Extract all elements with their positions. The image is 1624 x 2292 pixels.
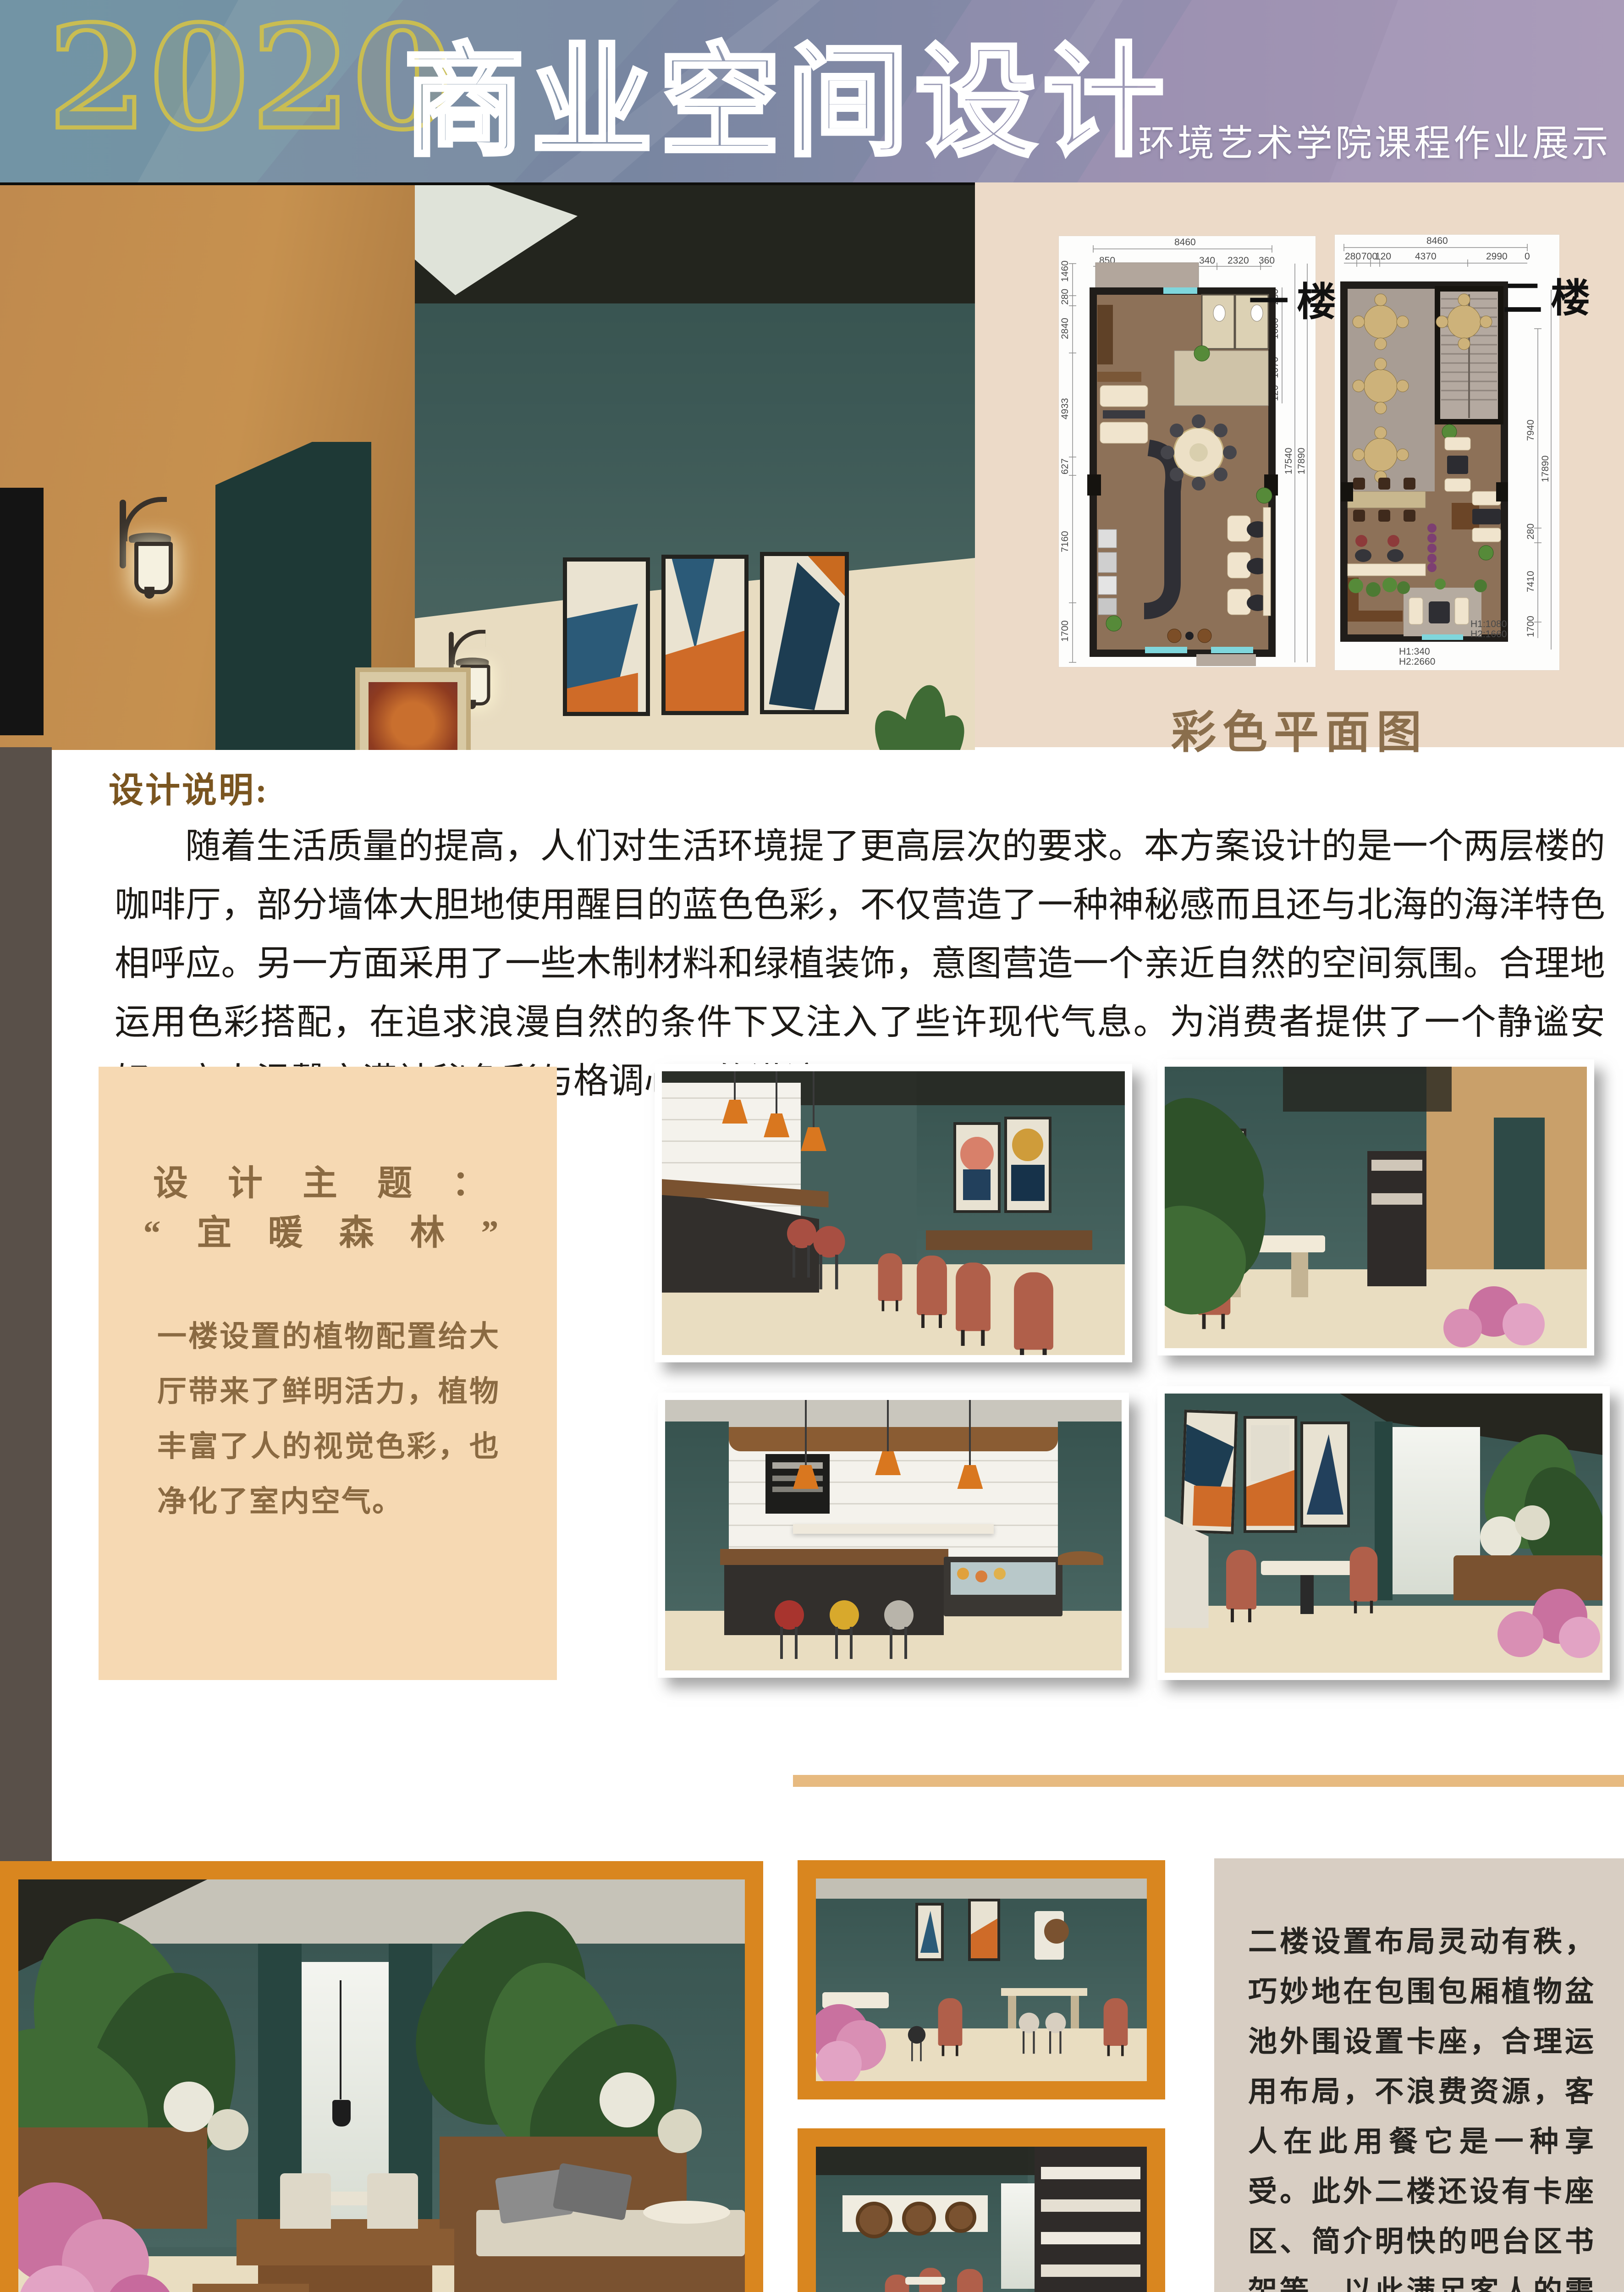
potted-plant-icon [873,680,960,750]
svg-text:280: 280 [1060,289,1070,305]
svg-text:H1:340: H1:340 [1399,646,1430,657]
wall-lantern-icon [117,497,176,621]
svg-text:7160: 7160 [1060,531,1070,552]
theme-body-text: 一楼设置的植物配置给大厅带来了鲜明活力，植物丰富了人的视觉色彩，也净化了室内空气… [157,1309,500,1529]
render-photo-bookshelf-corridor [798,2128,1165,2292]
svg-text:17890: 17890 [1296,448,1307,474]
svg-text:H1:1080: H1:1080 [1470,619,1507,629]
hero-arch-doorway [215,442,371,750]
abstract-painting [661,555,749,715]
svg-text:1700: 1700 [1060,620,1070,642]
svg-text:8460: 8460 [1426,236,1448,246]
portrait-painting [355,667,471,750]
svg-text:120: 120 [1375,251,1391,262]
svg-text:1700: 1700 [1525,616,1536,637]
render-photo-bar-perspective [655,1064,1132,1362]
svg-text:280: 280 [1345,251,1361,262]
poster-page: 2020 商业空间设计 环境艺术学院课程作业展示 [0,0,1624,2292]
theme-title-line2: “ 宜 暖 森 林 ” [99,1204,557,1255]
svg-text:17540: 17540 [1283,448,1294,474]
floorplan-panel: 8460 850 340 2320 360 1460 280 2840 4933… [975,182,1624,747]
svg-text:340: 340 [1199,255,1215,266]
header-subtitle: 环境艺术学院课程作业展示 [1138,114,1611,167]
svg-text:17890: 17890 [1540,456,1551,482]
svg-text:2990: 2990 [1486,251,1508,262]
abstract-painting [563,557,650,716]
hero-interior-render [0,182,975,750]
render-photo-booth-corner [1157,1386,1610,1680]
floorplan-caption: 彩色平面图 [975,696,1624,761]
theme-title-line1: 设 计 主 题 ： [99,1155,557,1205]
svg-text:627: 627 [1060,458,1070,474]
second-floor-note-text: 二楼设置布局灵动有秩，巧妙地在包围包厢植物盆池外围设置卡座，合理运用布局，不浪费… [1248,1917,1595,2292]
svg-text:360: 360 [1259,255,1275,266]
svg-text:2840: 2840 [1060,318,1070,339]
render-photo-dining-hall [1157,1059,1594,1355]
svg-text:7410: 7410 [1525,571,1536,592]
svg-text:4370: 4370 [1415,251,1437,262]
section-divider-bar [793,1775,1624,1787]
header-banner: 2020 商业空间设计 环境艺术学院课程作业展示 [0,0,1624,182]
design-theme-box: 设 计 主 题 ： “ 宜 暖 森 林 ” 一楼设置的植物配置给大厅带来了鲜明活… [99,1067,557,1680]
header-year: 2020 [48,0,455,161]
hero-tv-screen [0,488,44,735]
page-title: 商业空间设计 [403,4,1171,179]
svg-text:280: 280 [1525,523,1536,540]
left-accent-bar [0,747,52,1866]
svg-text:8460: 8460 [1174,237,1196,248]
svg-text:7940: 7940 [1525,419,1536,441]
svg-text:1460: 1460 [1060,260,1070,282]
render-photo-plant-lounge [0,1861,763,2292]
svg-text:4933: 4933 [1060,398,1070,419]
svg-text:0: 0 [1525,251,1530,262]
description-title: 设计说明: [109,762,269,812]
floor1-label: 一楼 [1249,270,1344,327]
second-floor-note-box: 二楼设置布局灵动有秩，巧妙地在包围包厢植物盆池外围设置卡座，合理运用布局，不浪费… [1214,1858,1624,2292]
render-photo-bar-front [658,1393,1129,1678]
svg-text:2320: 2320 [1228,255,1249,266]
render-photo-upstairs-dining [798,1860,1165,2099]
abstract-painting [760,552,849,714]
floor2-label: 二楼 [1503,266,1598,323]
svg-text:H2:2660: H2:2660 [1399,656,1435,667]
svg-text:H2:1660: H2:1660 [1470,629,1507,639]
